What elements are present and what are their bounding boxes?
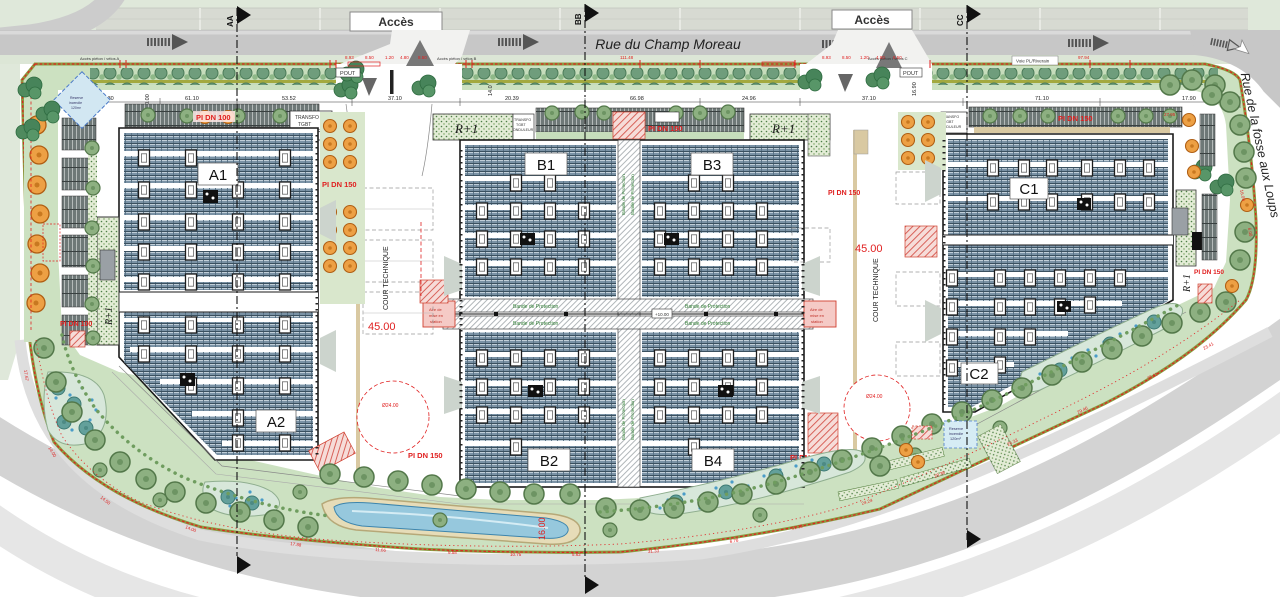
svg-text:CC: CC	[956, 14, 965, 26]
svg-text:station: station	[430, 319, 442, 324]
svg-text:B2: B2	[540, 453, 558, 470]
svg-text:Bande de Protection: Bande de Protection	[513, 321, 559, 327]
svg-text:PI DN 150: PI DN 150	[408, 451, 443, 460]
svg-text:66.98: 66.98	[630, 96, 644, 102]
svg-text:Bande de Protection: Bande de Protection	[621, 399, 626, 440]
svg-text:TGBT: TGBT	[516, 123, 526, 127]
svg-text:Aire de: Aire de	[429, 307, 442, 312]
svg-text:27.95: 27.95	[1164, 112, 1176, 117]
svg-text:45.00: 45.00	[368, 321, 396, 333]
svg-text:Bande de Protection: Bande de Protection	[630, 174, 635, 215]
svg-text:C1: C1	[1019, 181, 1038, 198]
svg-text:Aire de: Aire de	[810, 307, 823, 312]
svg-text:17.90: 17.90	[1182, 96, 1196, 102]
svg-text:Ø24.00: Ø24.00	[382, 403, 399, 409]
svg-text:8.93: 8.93	[345, 55, 354, 60]
svg-text:mise en: mise en	[429, 313, 443, 318]
svg-text:24.96: 24.96	[742, 96, 756, 102]
svg-text:8.50: 8.50	[893, 55, 902, 60]
svg-text:Bande de Protection: Bande de Protection	[513, 304, 559, 310]
svg-text:R+1: R+1	[454, 121, 478, 136]
svg-text:BB: BB	[574, 13, 583, 25]
svg-text:Rue du Champ Moreau: Rue du Champ Moreau	[595, 36, 741, 52]
svg-text:5.62: 5.62	[572, 552, 581, 557]
svg-text:R+1: R+1	[104, 307, 115, 326]
svg-text:8.50: 8.50	[365, 55, 374, 60]
svg-text:Accès piéton / vélos B: Accès piéton / vélos B	[437, 56, 477, 61]
svg-text:11.66: 11.66	[375, 547, 387, 553]
svg-text:Bande de Protection: Bande de Protection	[630, 399, 635, 440]
svg-text:A2: A2	[267, 414, 285, 431]
svg-text:station: station	[811, 319, 823, 324]
svg-text:TRANSFO: TRANSFO	[295, 115, 319, 121]
svg-text:Voie PL/Riverain: Voie PL/Riverain	[1016, 59, 1050, 64]
svg-text:71.10: 71.10	[1035, 96, 1049, 102]
svg-text:ONDULEUR: ONDULEUR	[513, 128, 534, 132]
svg-text:PI DN 150: PI DN 150	[322, 180, 357, 189]
svg-text:mise en: mise en	[810, 313, 824, 318]
svg-text:COUR TECHNIQUE: COUR TECHNIQUE	[383, 246, 390, 310]
svg-text:16.00: 16.00	[537, 517, 547, 540]
svg-text:45.00: 45.00	[855, 243, 883, 255]
svg-text:Bande de Protection: Bande de Protection	[685, 304, 731, 310]
svg-text:R+1: R+1	[771, 121, 795, 136]
svg-text:B3: B3	[703, 157, 721, 174]
svg-text:Accès: Accès	[854, 13, 890, 27]
svg-text:53.52: 53.52	[282, 96, 296, 102]
svg-text:COUR TECHNIQUE: COUR TECHNIQUE	[873, 258, 880, 322]
svg-text:PI DN 150: PI DN 150	[828, 190, 860, 197]
svg-text:B1: B1	[537, 157, 555, 174]
svg-text:PI DN 150: PI DN 150	[1194, 269, 1224, 276]
svg-text:POUT: POUT	[340, 71, 356, 77]
svg-text:4.80: 4.80	[400, 55, 409, 60]
svg-text:20.39: 20.39	[505, 96, 519, 102]
svg-text:31.33: 31.33	[648, 548, 660, 554]
svg-text:37.10: 37.10	[862, 96, 876, 102]
svg-text:Accès piéton / vélos A: Accès piéton / vélos A	[80, 56, 119, 61]
svg-text:incendie: incendie	[949, 432, 963, 436]
svg-text:+10.00: +10.00	[655, 312, 669, 317]
svg-text:120m³: 120m³	[71, 106, 82, 110]
svg-text:1.20: 1.20	[860, 55, 869, 60]
svg-text:14.0: 14.0	[488, 85, 494, 96]
svg-text:120m³: 120m³	[950, 437, 961, 441]
svg-text:PI DN 100: PI DN 100	[60, 321, 92, 328]
svg-text:8.50: 8.50	[418, 55, 427, 60]
svg-text:Reserve: Reserve	[70, 96, 83, 100]
svg-text:37.10: 37.10	[388, 96, 402, 102]
svg-text:AA: AA	[226, 15, 235, 27]
svg-text:C2: C2	[969, 366, 988, 383]
svg-text:PI DN 100: PI DN 100	[196, 113, 231, 122]
svg-text:PI DN 150: PI DN 150	[648, 124, 683, 133]
svg-text:1.20: 1.20	[385, 55, 394, 60]
svg-text:R+1: R+1	[1182, 274, 1193, 293]
svg-text:10.75: 10.75	[510, 552, 522, 557]
svg-text:POUT: POUT	[903, 71, 919, 77]
svg-text:97.94: 97.94	[1078, 55, 1090, 60]
svg-text:Ø24.00: Ø24.00	[866, 394, 883, 400]
svg-text:Bande de Protection: Bande de Protection	[621, 174, 626, 215]
svg-text:Reserve: Reserve	[949, 427, 963, 431]
svg-text:Bande de Protection: Bande de Protection	[685, 321, 731, 327]
svg-text:8.50: 8.50	[842, 55, 851, 60]
svg-text:9.58: 9.58	[448, 550, 457, 555]
svg-text:TRANSFO: TRANSFO	[514, 118, 531, 122]
svg-text:TGBT: TGBT	[298, 122, 311, 128]
svg-text:61.10: 61.10	[185, 96, 199, 102]
svg-text:111.48: 111.48	[620, 55, 634, 60]
svg-text:incendie: incendie	[69, 101, 82, 105]
svg-text:16.90: 16.90	[912, 82, 918, 96]
svg-text:PI DN 150: PI DN 150	[1058, 114, 1093, 123]
svg-text:Accès: Accès	[378, 15, 414, 29]
svg-text:8.93: 8.93	[822, 55, 831, 60]
svg-text:A1: A1	[209, 167, 227, 184]
svg-text:4.80: 4.80	[876, 55, 885, 60]
svg-text:B4: B4	[704, 453, 722, 470]
